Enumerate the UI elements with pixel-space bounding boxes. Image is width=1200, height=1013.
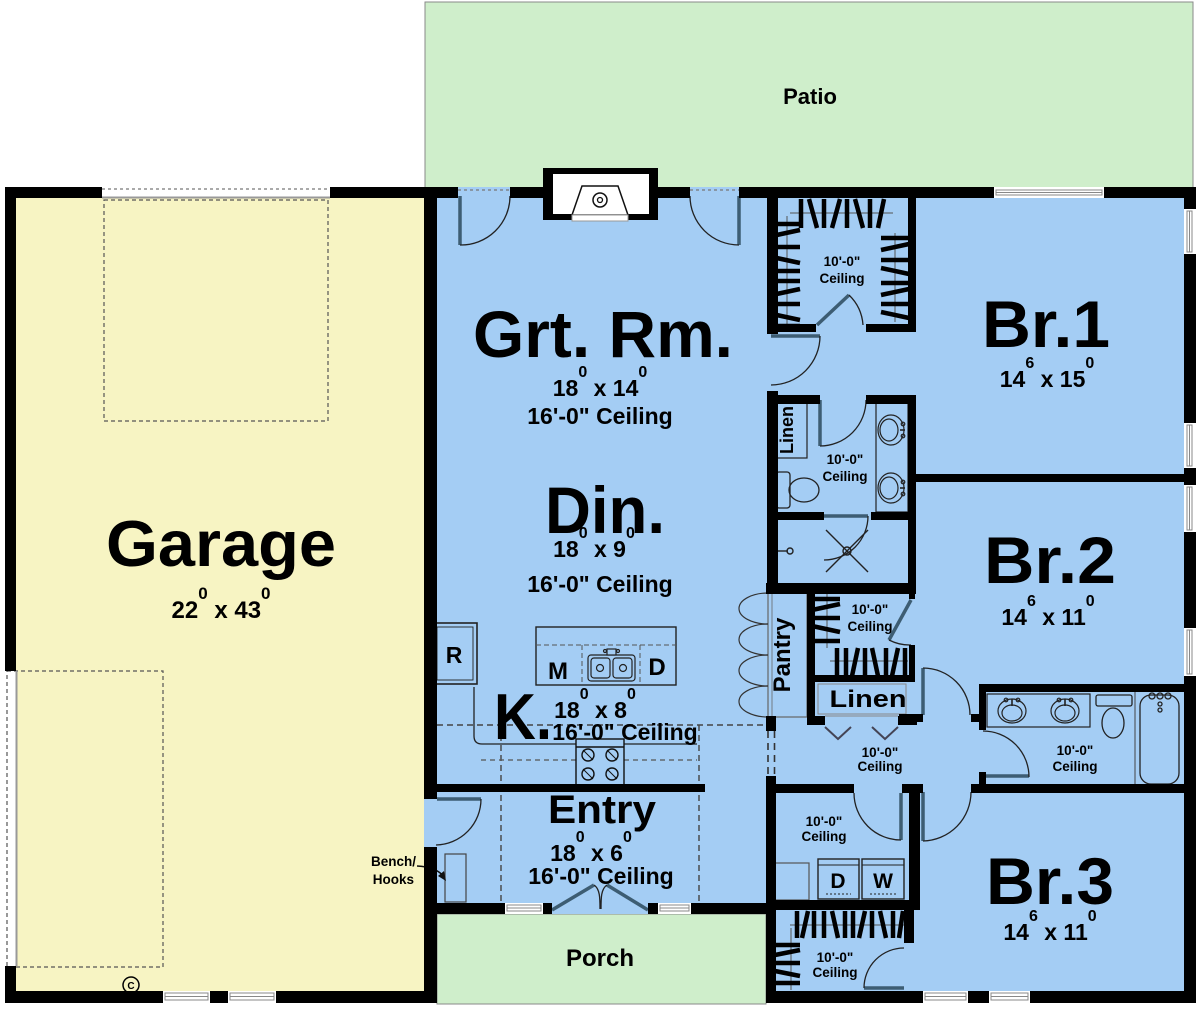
svg-text:Ceiling: Ceiling bbox=[801, 829, 846, 844]
svg-text:Grt. Rm.: Grt. Rm. bbox=[473, 297, 733, 371]
svg-text:Ceiling: Ceiling bbox=[822, 469, 867, 484]
svg-text:10'-0": 10'-0" bbox=[806, 814, 843, 829]
svg-text:R: R bbox=[446, 642, 463, 668]
svg-text:W: W bbox=[873, 870, 893, 893]
svg-text:Pantry: Pantry bbox=[769, 617, 796, 692]
svg-text:10'-0": 10'-0" bbox=[824, 254, 861, 269]
svg-text:Bench/: Bench/ bbox=[371, 854, 416, 869]
svg-text:10'-0": 10'-0" bbox=[1057, 743, 1094, 758]
svg-text:D: D bbox=[830, 870, 845, 893]
svg-text:10'-0": 10'-0" bbox=[862, 745, 899, 760]
svg-text:Ceiling: Ceiling bbox=[847, 619, 892, 634]
svg-text:Ceiling: Ceiling bbox=[857, 759, 902, 774]
svg-text:10'-0": 10'-0" bbox=[817, 950, 854, 965]
svg-text:16'-0" Ceiling: 16'-0" Ceiling bbox=[527, 403, 672, 429]
svg-text:Patio: Patio bbox=[783, 84, 837, 109]
svg-text:Br.3: Br.3 bbox=[986, 844, 1114, 918]
svg-text:Br.1: Br.1 bbox=[982, 287, 1110, 361]
svg-text:Entry: Entry bbox=[548, 788, 657, 832]
svg-text:16'-0" Ceiling: 16'-0" Ceiling bbox=[552, 719, 697, 745]
svg-text:Linen: Linen bbox=[830, 686, 907, 713]
svg-text:16'-0" Ceiling: 16'-0" Ceiling bbox=[528, 863, 673, 889]
svg-text:Br.2: Br.2 bbox=[984, 523, 1116, 597]
svg-text:D: D bbox=[648, 654, 665, 681]
svg-text:Ceiling: Ceiling bbox=[1052, 759, 1097, 774]
svg-text:10'-0": 10'-0" bbox=[852, 602, 889, 617]
svg-text:C: C bbox=[127, 981, 134, 992]
svg-text:Hooks: Hooks bbox=[373, 872, 414, 887]
svg-text:16'-0" Ceiling: 16'-0" Ceiling bbox=[527, 571, 672, 597]
svg-text:Porch: Porch bbox=[566, 945, 634, 972]
svg-text:Ceiling: Ceiling bbox=[812, 965, 857, 980]
svg-text:K.: K. bbox=[494, 680, 552, 753]
svg-text:Ceiling: Ceiling bbox=[819, 271, 864, 286]
svg-text:Garage: Garage bbox=[106, 507, 336, 580]
svg-text:Linen: Linen bbox=[777, 406, 797, 454]
svg-text:10'-0": 10'-0" bbox=[827, 452, 864, 467]
